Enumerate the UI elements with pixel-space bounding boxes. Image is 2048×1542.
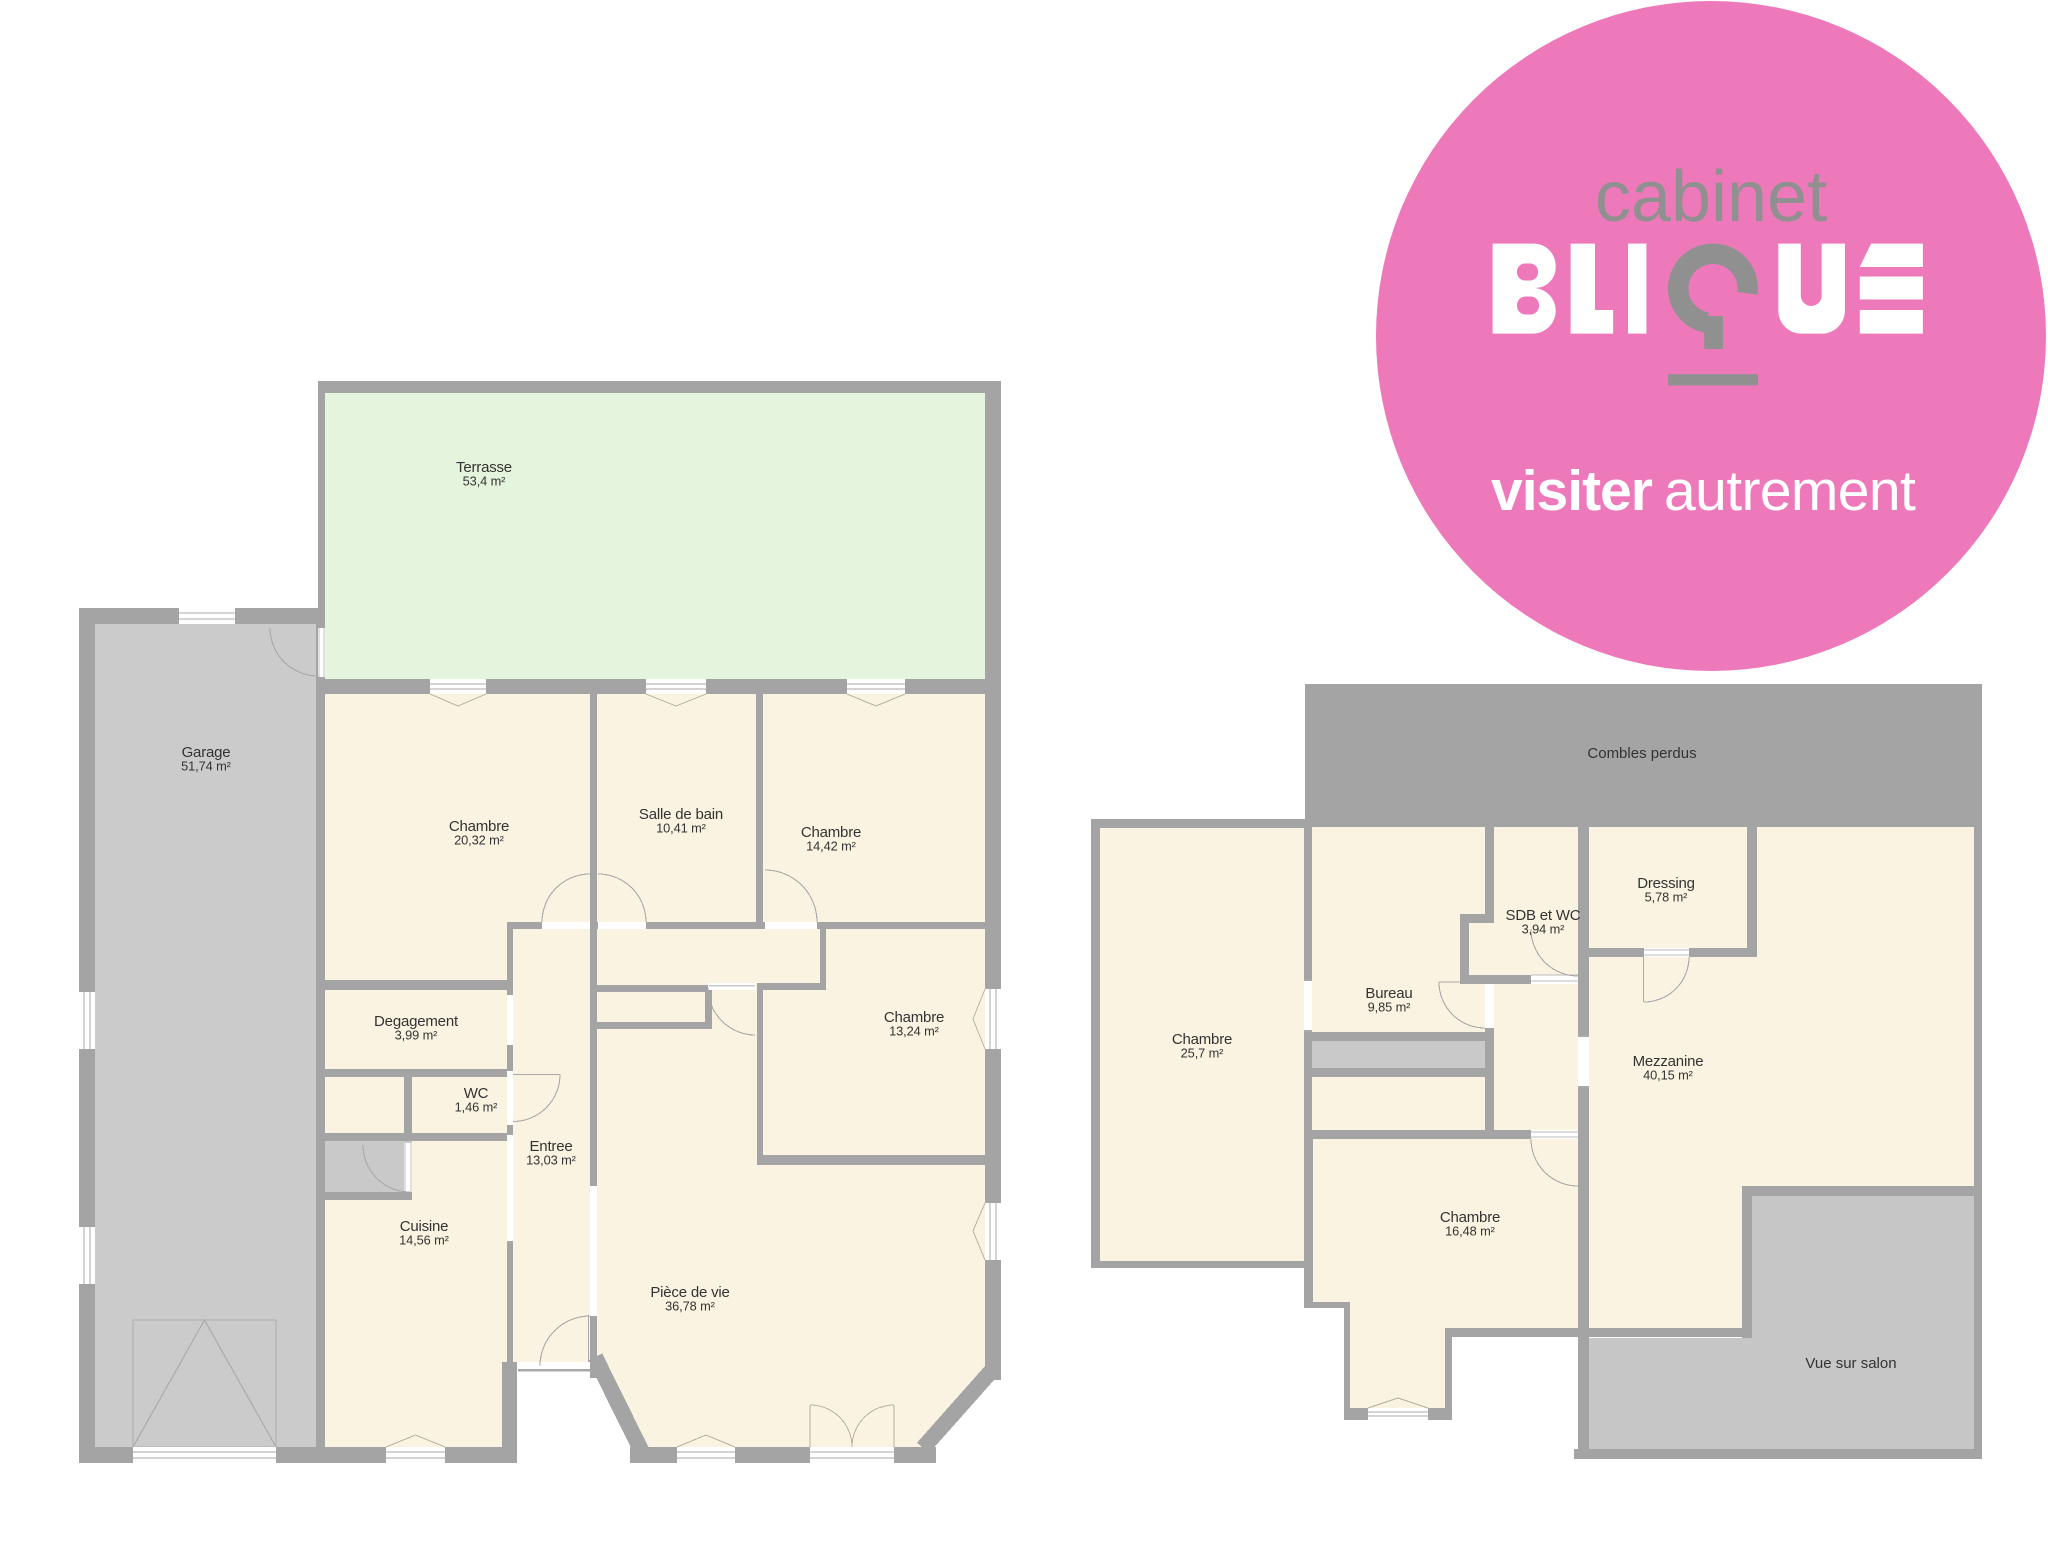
svg-text:16,48 m²: 16,48 m²	[1445, 1224, 1496, 1239]
svg-text:1,46 m²: 1,46 m²	[455, 1100, 499, 1115]
svg-text:visiter: visiter	[1491, 459, 1653, 523]
svg-text:5,78 m²: 5,78 m²	[1645, 890, 1689, 905]
svg-text:cabinet: cabinet	[1595, 157, 1827, 237]
svg-text:autrement: autrement	[1664, 459, 1916, 523]
svg-text:Combles perdus: Combles perdus	[1587, 745, 1696, 762]
svg-text:40,15 m²: 40,15 m²	[1643, 1068, 1694, 1083]
svg-text:10,41 m²: 10,41 m²	[656, 821, 707, 836]
svg-text:51,74 m²: 51,74 m²	[181, 759, 232, 774]
svg-text:36,78 m²: 36,78 m²	[665, 1299, 716, 1314]
svg-text:13,03 m²: 13,03 m²	[526, 1153, 577, 1168]
svg-text:Vue sur salon: Vue sur salon	[1805, 1355, 1896, 1372]
svg-text:3,94 m²: 3,94 m²	[1522, 922, 1566, 937]
svg-text:53,4 m²: 53,4 m²	[463, 474, 507, 489]
svg-text:20,32 m²: 20,32 m²	[454, 833, 505, 848]
svg-text:13,24 m²: 13,24 m²	[889, 1024, 940, 1039]
svg-text:3,99 m²: 3,99 m²	[395, 1028, 439, 1043]
svg-text:14,56 m²: 14,56 m²	[399, 1233, 450, 1248]
svg-text:9,85 m²: 9,85 m²	[1368, 1000, 1412, 1015]
svg-text:14,42 m²: 14,42 m²	[806, 839, 857, 854]
svg-text:25,7 m²: 25,7 m²	[1181, 1046, 1225, 1061]
